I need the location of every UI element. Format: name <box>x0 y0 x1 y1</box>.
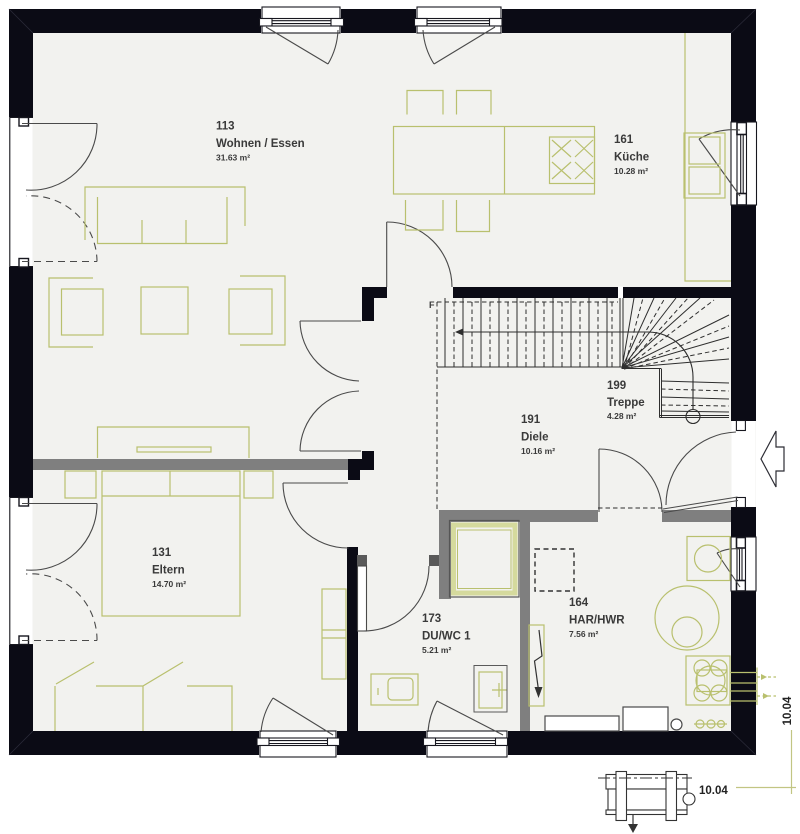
svg-text:14.70 m²: 14.70 m² <box>152 579 186 589</box>
svg-text:5.21 m²: 5.21 m² <box>422 645 451 655</box>
svg-text:10.16 m²: 10.16 m² <box>521 446 555 456</box>
svg-text:DU/WC 1: DU/WC 1 <box>422 631 471 643</box>
svg-text:Treppe: Treppe <box>607 397 645 409</box>
svg-text:Diele: Diele <box>521 432 549 444</box>
svg-text:164: 164 <box>569 597 589 609</box>
svg-text:Wohnen / Essen: Wohnen / Essen <box>216 138 305 150</box>
svg-text:10.04: 10.04 <box>782 696 794 725</box>
svg-text:113: 113 <box>216 121 235 133</box>
svg-text:31.63 m²: 31.63 m² <box>216 153 250 163</box>
svg-text:173: 173 <box>422 613 441 625</box>
svg-text:10.04: 10.04 <box>699 785 728 797</box>
svg-text:7.56 m²: 7.56 m² <box>569 629 598 639</box>
svg-text:F: F <box>429 300 435 310</box>
svg-text:131: 131 <box>152 547 172 559</box>
svg-text:161: 161 <box>614 134 634 146</box>
svg-text:10.28 m²: 10.28 m² <box>614 166 648 176</box>
svg-text:191: 191 <box>521 414 541 426</box>
svg-text:4.28 m²: 4.28 m² <box>607 411 636 421</box>
svg-text:HAR/HWR: HAR/HWR <box>569 615 625 627</box>
svg-text:Eltern: Eltern <box>152 565 185 577</box>
svg-text:Küche: Küche <box>614 152 649 164</box>
svg-text:199: 199 <box>607 380 626 392</box>
